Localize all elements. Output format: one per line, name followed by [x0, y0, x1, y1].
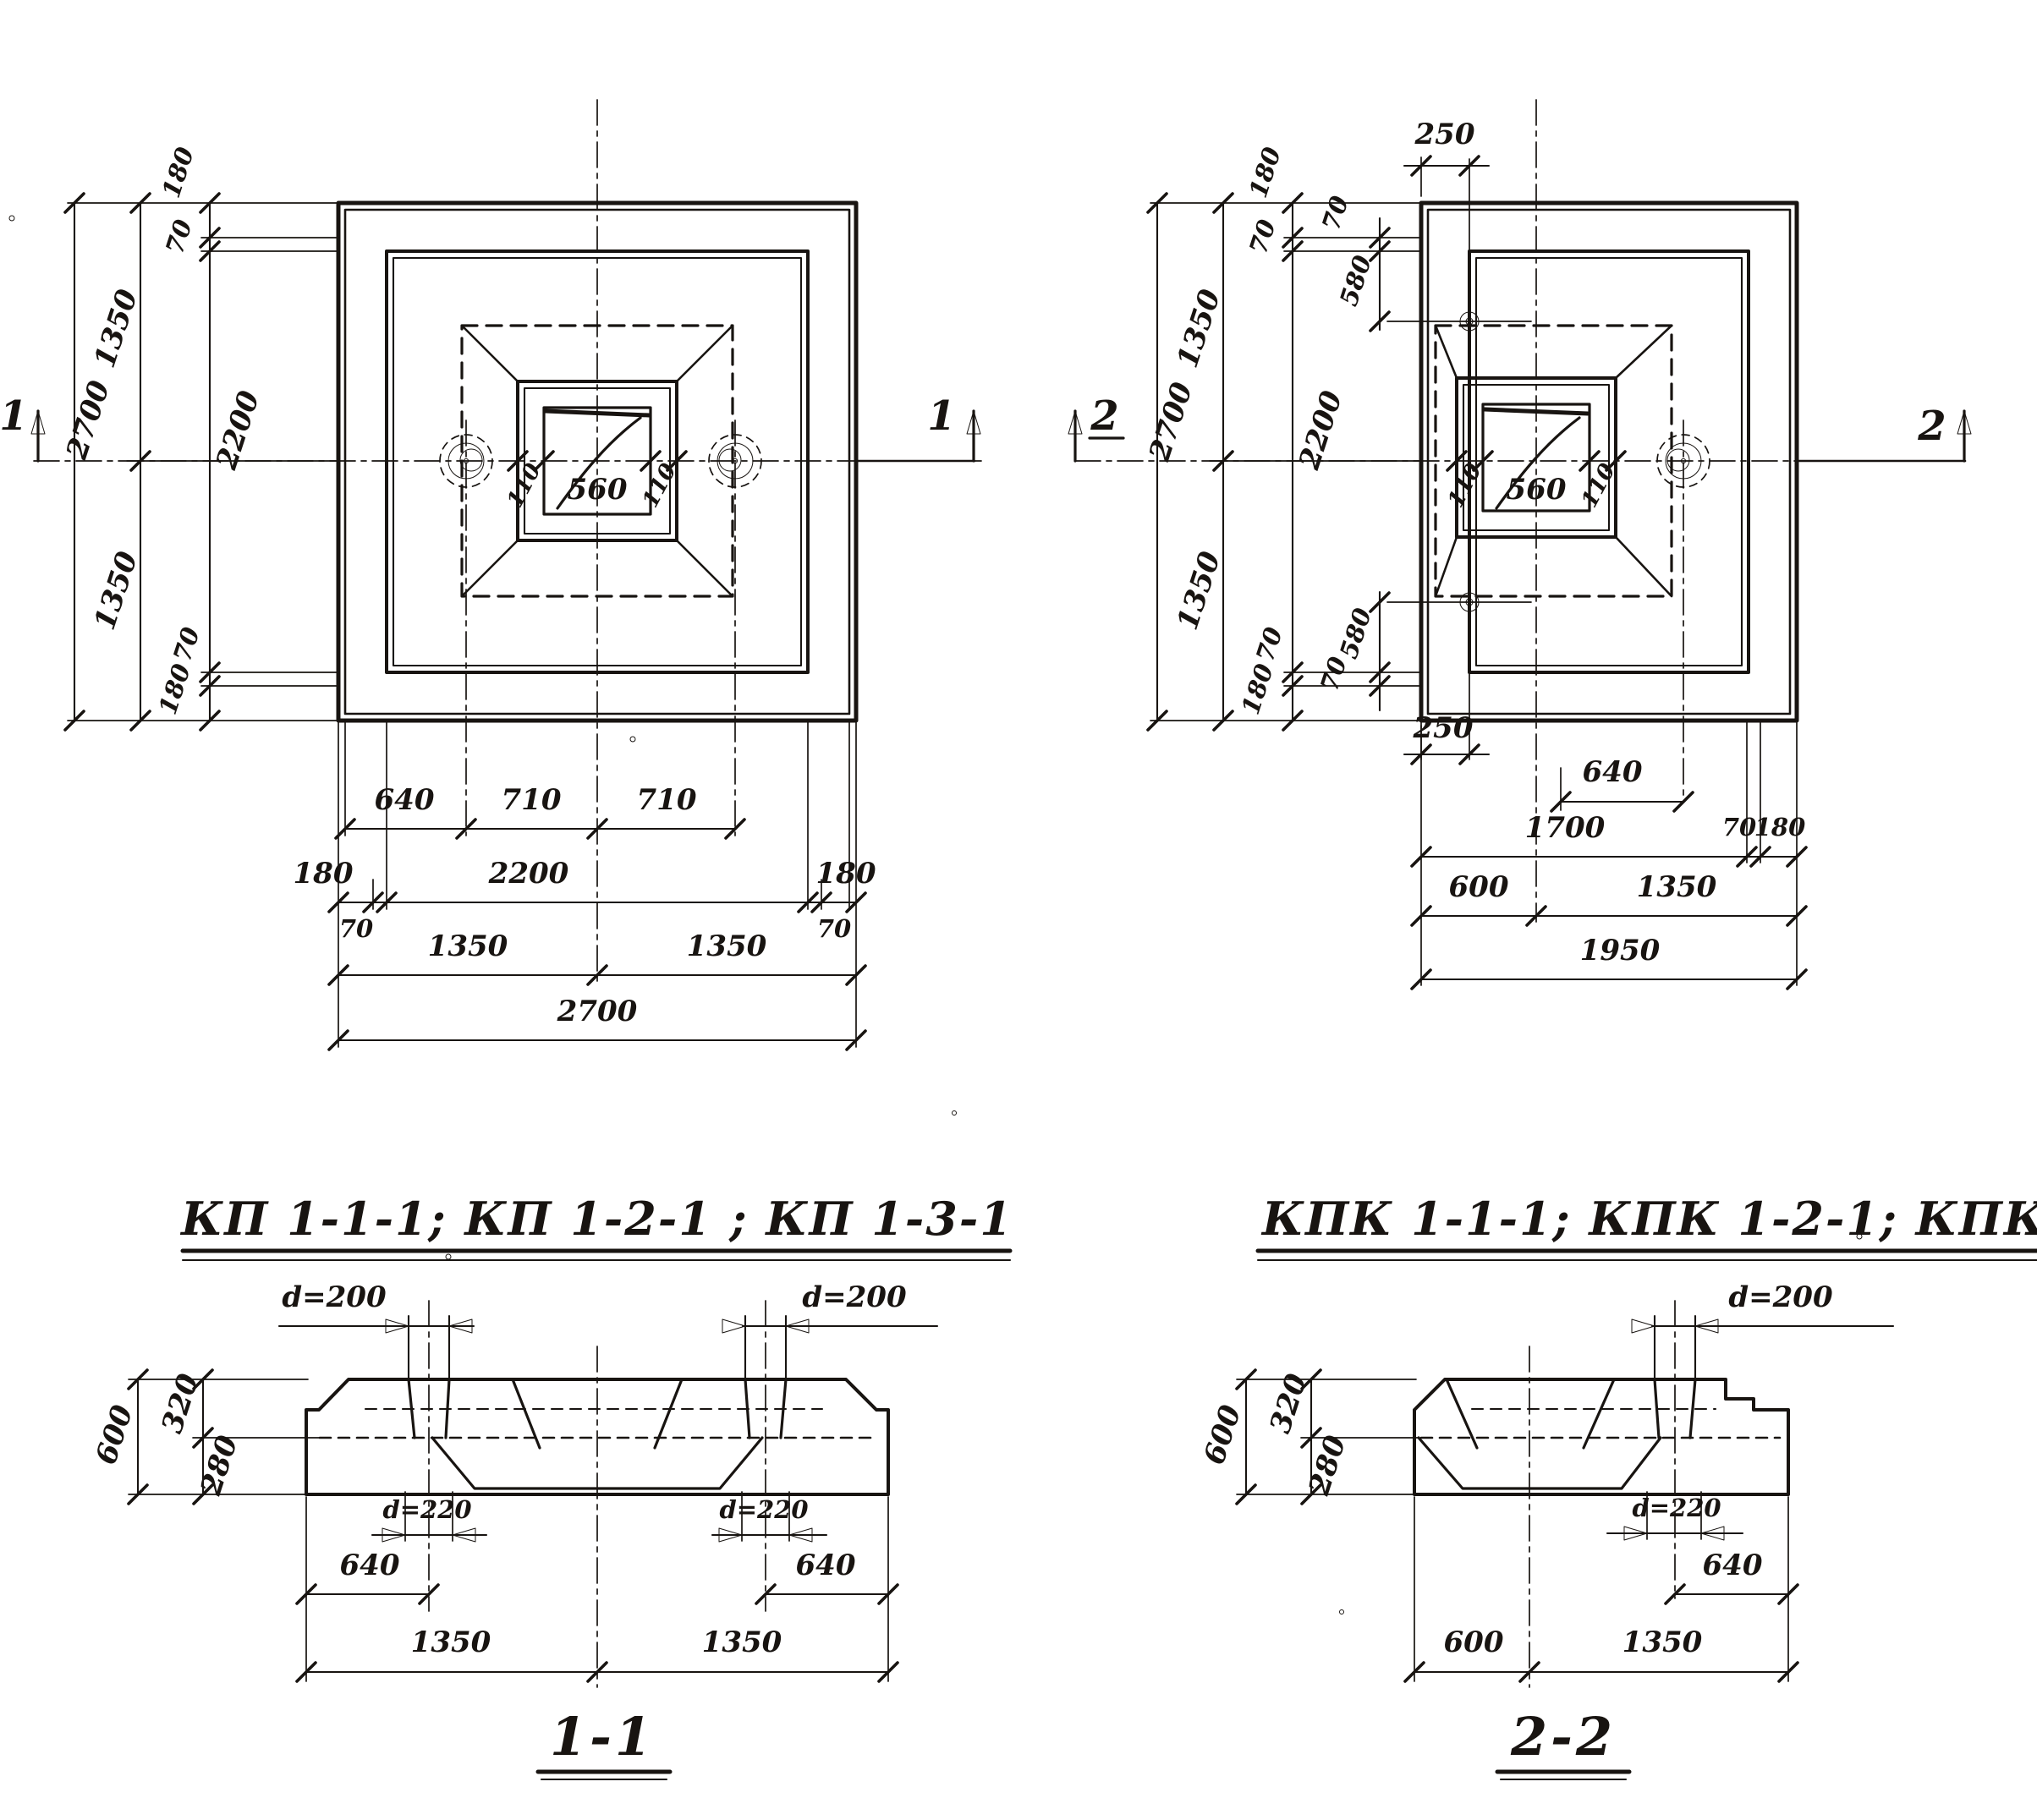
dim-height-total: 600 [1198, 1401, 1249, 1468]
dim-total-height: 2700 [60, 376, 118, 464]
dim-inner-width: 2200 [488, 857, 569, 891]
dim-pipe-bottom: d=220 [1632, 1494, 1721, 1522]
dim-half-right: 1350 [687, 929, 767, 963]
section-2-2: d=200 600 320 280 d=220 640 [1198, 1280, 1893, 1779]
plan-kpk-title: КПК 1-1-1; КПК 1-2-1; КПК 1-3-1 [1260, 1192, 2037, 1246]
dim-socket: 560 [1507, 473, 1567, 507]
plan-kp-left-dims: 2700 1350 1350 180 70 2200 70 180 [60, 144, 338, 730]
plan-kp: 2700 1350 1350 180 70 2200 70 180 110 56… [0, 100, 981, 1050]
dim-gap-top: 70 [1244, 216, 1282, 257]
plan-kp-title: КП 1-1-1; КП 1-2-1 ; КП 1-3-1 [179, 1192, 1013, 1246]
dim-hole-gap-bottom: 70 [1315, 653, 1353, 694]
dim-edge-left: 180 [294, 857, 354, 891]
section-mark-2-left: 2 [1068, 392, 1123, 461]
section-2-2-title: 2-2 [1510, 1706, 1616, 1768]
section-1-1: d=200 d=200 600 320 280 d=220 [90, 1280, 937, 1779]
section-1-1-title: 1-1 [550, 1706, 655, 1768]
dim-height-total: 600 [90, 1401, 140, 1468]
dim-hole-offset-right: 640 [1583, 755, 1643, 789]
dim-hole-depth-bottom: 580 [1334, 605, 1377, 662]
dim-edge-bottom: 180 [1236, 661, 1279, 718]
dim-edge-bottom: 180 [153, 661, 196, 718]
dim-gap-top: 70 [160, 216, 198, 257]
section-1-1-d200-dims: d=200 d=200 [279, 1280, 937, 1379]
section-mark-label: 1 [927, 392, 955, 440]
section-1-1-d220-dims: d=220 d=220 [372, 1492, 826, 1542]
section-mark-2-right: 2 [1797, 403, 1971, 461]
dim-hole-gap-top: 70 [1316, 192, 1354, 233]
section-mark-1-left: 1 [0, 392, 45, 461]
dim-total-width: 1950 [1580, 934, 1661, 968]
section-mark-label: 2 [1090, 392, 1118, 440]
dim-socket-left: 110 [502, 459, 546, 512]
plan-kpk-top-dims: 250 [1404, 118, 1489, 196]
dim-gap-bottom: 70 [167, 623, 206, 665]
dim-pipe-top-right: d=200 [802, 1280, 907, 1314]
section-2-2-d220-dim: d=220 [1607, 1492, 1743, 1540]
dim-hole-edge: 640 [375, 783, 435, 817]
dim-col-left: 600 [1449, 870, 1509, 904]
dim-half-left: 1350 [428, 929, 508, 963]
dim-socket: 560 [568, 473, 628, 507]
section-2-2-d200-dim: d=200 [1632, 1280, 1893, 1379]
dim-height-bottom: 280 [1302, 1431, 1353, 1499]
section-2-2-body [1414, 1379, 1788, 1494]
dim-total-height: 2700 [1143, 378, 1200, 466]
section-mark-label: 2 [1917, 403, 1946, 450]
section-mark-1-right: 1 [856, 392, 980, 461]
dim-pipe-offset-left: 640 [340, 1549, 400, 1582]
dim-half-bottom: 1350 [1171, 547, 1227, 634]
plan-kpk-outline [1421, 203, 1797, 721]
dim-hole-center-r: 710 [637, 783, 697, 817]
dim-pipe-top: d=200 [1728, 1280, 1833, 1314]
dim-inner-width: 1700 [1525, 811, 1606, 845]
dim-gap-left: 70 [339, 914, 373, 943]
dim-hole-depth-top: 580 [1334, 252, 1377, 310]
dim-half-right: 1350 [702, 1625, 782, 1659]
section-2-2-left-dims: 600 320 280 [1198, 1369, 1419, 1504]
dim-edge-right: 180 [1754, 813, 1806, 841]
dim-gap-right: 70 [817, 914, 851, 943]
section-2-2-bottom-dims: 640 600 1350 [1405, 1497, 1798, 1681]
dim-hole-offset-top: 250 [1414, 118, 1475, 151]
blueprint-sheet: 2700 1350 1350 180 70 2200 70 180 110 56… [0, 0, 2037, 1820]
dim-pipe-bottom-left: d=220 [382, 1495, 471, 1524]
plan-kpk-bottom-dims: 250 640 1700 70 180 600 1350 1950 [1404, 711, 1806, 989]
dim-edge-right: 180 [816, 857, 876, 891]
section-1-1-left-dims: 600 320 280 [90, 1369, 321, 1504]
dim-half-left: 1350 [411, 1625, 491, 1659]
dim-height-bottom: 280 [194, 1431, 244, 1499]
dim-hole-center-l: 710 [502, 783, 562, 817]
section-mark-label: 1 [0, 392, 28, 440]
dim-edge-top: 180 [156, 144, 200, 201]
dim-col-right: 1350 [1637, 870, 1717, 904]
plan-kp-bottom-dims: 640 710 710 180 2200 180 70 70 1350 1350… [294, 721, 876, 1050]
dim-half-top: 1350 [1171, 285, 1227, 372]
dim-edge-top: 180 [1244, 144, 1287, 201]
dim-col-right: 1350 [1622, 1625, 1703, 1659]
titles: КП 1-1-1; КП 1-2-1 ; КП 1-3-1 КПК 1-1-1;… [179, 1192, 2037, 1260]
dim-half-top: 1350 [88, 285, 145, 372]
dim-pipe-bottom-right: d=220 [719, 1495, 808, 1524]
dim-gap-bottom: 70 [1250, 623, 1288, 665]
dim-pipe-top-left: d=200 [282, 1280, 387, 1314]
dim-total-width: 2700 [557, 995, 638, 1028]
dim-half-bottom: 1350 [88, 547, 145, 634]
dim-pipe-offset: 640 [1703, 1549, 1763, 1582]
dim-gap-right: 70 [1722, 813, 1756, 841]
plan-kpk: 250 2700 1350 1350 180 70 2200 70 180 [1068, 100, 1971, 989]
plan-kpk-left-dims: 2700 1350 1350 180 70 2200 70 180 70 580… [1143, 144, 1421, 730]
dim-col-left: 600 [1444, 1625, 1504, 1659]
dim-pipe-offset-right: 640 [796, 1549, 856, 1582]
drawing-canvas: 2700 1350 1350 180 70 2200 70 180 110 56… [0, 0, 2037, 1820]
